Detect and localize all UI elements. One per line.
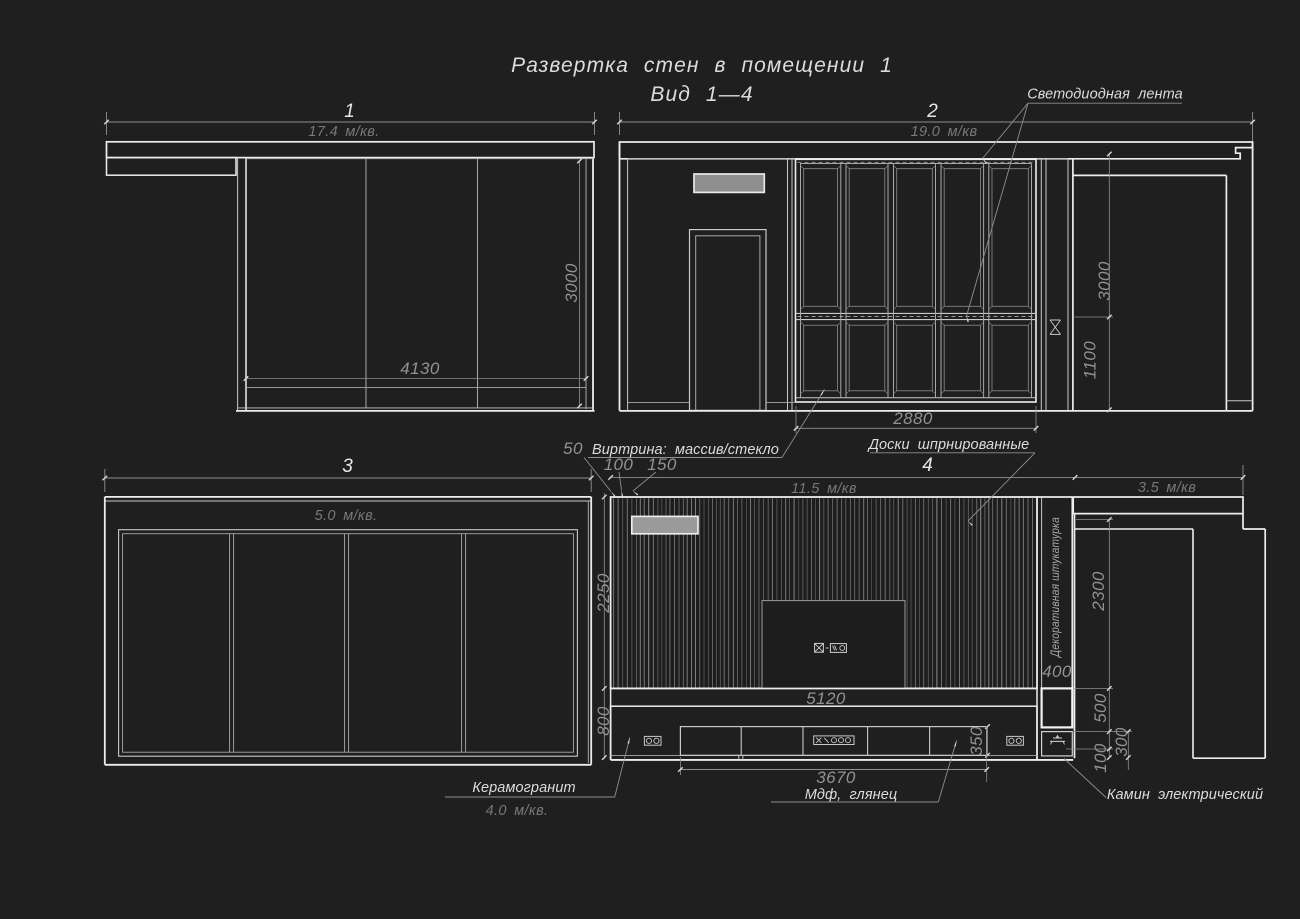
svg-text:3: 3 [342, 456, 354, 477]
svg-text:500: 500 [1091, 693, 1110, 723]
svg-text:Мдф, глянец: Мдф, глянец [805, 787, 898, 803]
svg-text:Декоративная штукатурка: Декоративная штукатурка [1050, 517, 1062, 659]
svg-text:19.0 м/кв: 19.0 м/кв [911, 124, 978, 140]
svg-text:2300: 2300 [1089, 571, 1108, 612]
svg-text:150: 150 [647, 455, 677, 474]
svg-text:5120: 5120 [806, 689, 846, 708]
svg-text:4.0 м/кв.: 4.0 м/кв. [486, 803, 549, 819]
svg-text:Светодиодная лента: Светодиодная лента [1027, 87, 1183, 103]
svg-text:3000: 3000 [562, 263, 581, 303]
svg-text:350: 350 [967, 726, 986, 756]
svg-text:100: 100 [604, 455, 634, 474]
svg-text:5.0 м/кв.: 5.0 м/кв. [315, 508, 378, 524]
svg-text:11.5 м/кв: 11.5 м/кв [791, 481, 857, 497]
svg-text:Керамогранит: Керамогранит [472, 780, 575, 796]
svg-text:2880: 2880 [892, 409, 933, 428]
svg-text:3670: 3670 [816, 768, 856, 787]
svg-text:Камин электрический: Камин электрический [1107, 787, 1263, 803]
svg-text:1100: 1100 [1081, 341, 1100, 379]
svg-text:1: 1 [344, 101, 356, 122]
svg-text:100: 100 [1091, 743, 1110, 773]
svg-text:2: 2 [926, 101, 939, 122]
svg-text:3.5 м/кв: 3.5 м/кв [1138, 480, 1196, 496]
svg-text:300: 300 [1112, 727, 1131, 757]
svg-text:50: 50 [563, 439, 583, 458]
svg-text:4: 4 [922, 455, 934, 476]
svg-text:4130: 4130 [400, 359, 440, 378]
svg-text:Доски шпрнированные: Доски шпрнированные [867, 437, 1030, 453]
svg-text:Развертка стен в помещении: Развертка стен в помещении 1 [511, 54, 893, 77]
svg-text:17.4 м/кв.: 17.4 м/кв. [308, 124, 379, 140]
svg-text:3000: 3000 [1095, 261, 1114, 301]
svg-text:Вид 1—4: Вид 1—4 [650, 83, 753, 106]
svg-text:400: 400 [1042, 662, 1072, 681]
